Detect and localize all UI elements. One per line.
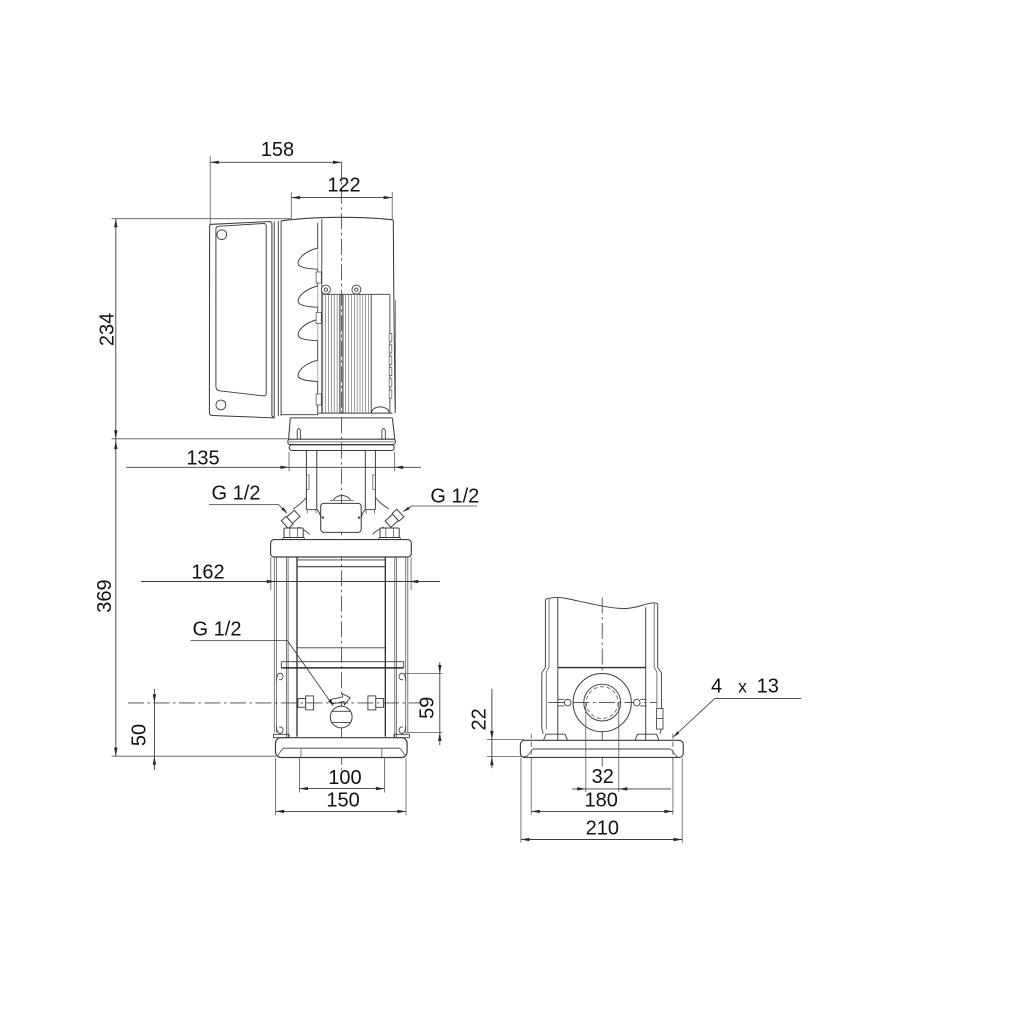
svg-text:158: 158 xyxy=(261,139,294,161)
svg-text:135: 135 xyxy=(186,447,219,469)
svg-text:13: 13 xyxy=(757,676,779,698)
svg-text:G 1/2: G 1/2 xyxy=(430,486,479,508)
svg-text:4: 4 xyxy=(711,676,722,698)
svg-text:162: 162 xyxy=(191,562,224,584)
svg-text:22: 22 xyxy=(468,708,490,730)
svg-text:G 1/2: G 1/2 xyxy=(193,619,242,641)
svg-text:G 1/2: G 1/2 xyxy=(212,483,261,505)
svg-text:59: 59 xyxy=(416,697,438,719)
svg-text:122: 122 xyxy=(327,175,360,197)
svg-text:369: 369 xyxy=(94,579,116,612)
svg-text:100: 100 xyxy=(328,767,361,789)
svg-text:180: 180 xyxy=(585,790,618,812)
svg-text:50: 50 xyxy=(129,724,151,746)
svg-text:150: 150 xyxy=(326,790,359,812)
svg-text:234: 234 xyxy=(96,313,118,346)
svg-text:32: 32 xyxy=(592,766,614,788)
svg-text:210: 210 xyxy=(586,818,619,840)
svg-text:x: x xyxy=(738,677,747,697)
